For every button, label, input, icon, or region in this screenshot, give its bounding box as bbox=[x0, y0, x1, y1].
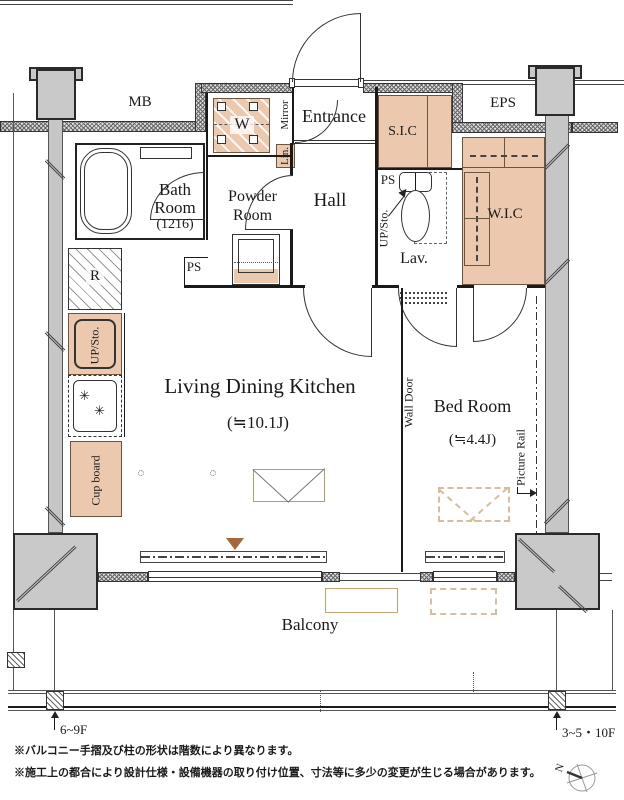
ac-unit-outline bbox=[325, 588, 398, 613]
wall-powder-top bbox=[206, 155, 293, 157]
washbasin-inner bbox=[238, 239, 274, 273]
wic-shelf-divider bbox=[504, 138, 505, 167]
bed-window bbox=[433, 571, 497, 582]
compass-graphic bbox=[552, 750, 608, 800]
picture-rail-label: Picture Rail bbox=[514, 421, 529, 495]
site-line-right-low bbox=[612, 610, 613, 690]
picture-rail-arrow-head bbox=[530, 489, 537, 497]
wall-bottom-hatch bbox=[497, 572, 515, 582]
room-label-sic: S.I.C bbox=[378, 124, 427, 140]
wall-powder-bottom bbox=[184, 285, 293, 288]
compass: N bbox=[552, 750, 608, 800]
column-bottom-left bbox=[13, 533, 98, 610]
room-label-mb: MB bbox=[100, 94, 180, 111]
exterior-wall-left bbox=[48, 118, 63, 533]
room-label-bath-1: Bath bbox=[140, 180, 210, 200]
room-label-entrance: Entrance bbox=[293, 106, 375, 127]
curtain-box-bed bbox=[425, 551, 505, 563]
hall-door-arc bbox=[303, 288, 372, 357]
railing-line bbox=[8, 690, 616, 691]
room-label-eps: EPS bbox=[468, 95, 538, 112]
washbasin-dots bbox=[234, 262, 278, 263]
washer-label: W bbox=[230, 116, 254, 134]
wall-hall-left-upper bbox=[290, 143, 293, 175]
vent-dots bbox=[400, 297, 447, 299]
railing-line bbox=[8, 706, 616, 708]
vent-dots bbox=[400, 292, 447, 294]
room-label-bath-3: (1216) bbox=[140, 217, 210, 233]
ceiling-mark bbox=[138, 470, 144, 476]
floor-arrow-line bbox=[54, 716, 55, 730]
vent-dots bbox=[400, 302, 447, 304]
ac-unit-dashed bbox=[430, 588, 497, 615]
ps-label-powder: PS bbox=[182, 259, 206, 275]
wall-ps-step-h bbox=[184, 257, 208, 258]
floor-label-left: 6~9F bbox=[60, 722, 87, 738]
floor-arrow-head bbox=[553, 711, 561, 718]
railing-line bbox=[8, 710, 616, 711]
counter-front-line bbox=[124, 313, 125, 437]
toilet-bowl bbox=[401, 190, 430, 242]
room-label-balcony: Balcony bbox=[268, 615, 352, 635]
fridge-label: R bbox=[86, 268, 104, 285]
bath-counter bbox=[140, 147, 192, 159]
column-drop-line bbox=[556, 610, 557, 692]
bathtub-inner bbox=[84, 152, 128, 230]
wic-door-arc bbox=[473, 288, 527, 342]
wall-hatch-far-right bbox=[572, 122, 618, 133]
wic-shelf-dashes bbox=[470, 155, 538, 157]
footnote-1: ※バルコニー手摺及び柱の形状は階数により異なります。 bbox=[14, 742, 298, 758]
ps-label-lav: PS bbox=[376, 172, 400, 188]
room-label-wic: W.I.C bbox=[477, 206, 533, 223]
railing-post bbox=[46, 691, 64, 710]
railing-post bbox=[7, 652, 25, 668]
wall-hatch-mb bbox=[0, 121, 201, 132]
picture-rail-arrow-h bbox=[517, 493, 531, 494]
room-label-lav: Lav. bbox=[392, 250, 436, 268]
sic-divider bbox=[427, 96, 428, 167]
column-top-left bbox=[36, 69, 76, 120]
wall-seg bbox=[372, 285, 399, 288]
room-area-ldk: (≒10.1J) bbox=[158, 413, 358, 433]
ceiling-mark bbox=[210, 470, 216, 476]
room-label-hall: Hall bbox=[300, 190, 360, 212]
wall-seg bbox=[457, 285, 474, 288]
toilet-tank-divider bbox=[415, 173, 416, 191]
entrance-door-arc bbox=[292, 13, 361, 82]
wall-lav-top bbox=[378, 168, 465, 170]
powder-door-arc bbox=[245, 175, 293, 230]
column-drop-line bbox=[54, 610, 55, 692]
wall-bottom-mid bbox=[340, 573, 420, 581]
wall-bath-powder bbox=[206, 93, 208, 240]
balcony-triangle-marker bbox=[226, 538, 244, 550]
corridor-line-left bbox=[0, 0, 293, 5]
washer-foot bbox=[249, 102, 258, 111]
wall-seg bbox=[527, 285, 545, 288]
mirror-label: Mirror bbox=[279, 92, 291, 138]
wall-bottom-hatch bbox=[98, 572, 148, 582]
wall-hall-left-lower bbox=[290, 230, 293, 288]
stove-burner: ✳ bbox=[79, 388, 90, 404]
ldk-table bbox=[253, 469, 325, 502]
room-label-bed: Bed Room bbox=[410, 396, 535, 417]
footnote-2: ※施工上の都合により設計仕様・設備機器の取り付け位置、寸法等に多少の変更が生じる… bbox=[14, 764, 541, 780]
curtain-box-ldk bbox=[140, 551, 327, 563]
ldk-window bbox=[148, 571, 322, 582]
washer-foot bbox=[217, 135, 226, 144]
washer-foot bbox=[249, 135, 258, 144]
site-line-left-low bbox=[13, 668, 14, 690]
entrance-step bbox=[293, 140, 375, 144]
floor-arrow-line bbox=[556, 716, 557, 730]
wall-hatch-top-right bbox=[363, 83, 463, 93]
room-label-ldk: Living Dining Kitchen bbox=[125, 374, 395, 399]
kitchen-upsto-label: UP/Sto. bbox=[88, 324, 103, 368]
cupboard-label: Cup board bbox=[89, 451, 104, 511]
wall-bottom-hatch bbox=[322, 572, 340, 582]
exterior-wall-right bbox=[545, 114, 569, 533]
washer-foot bbox=[217, 102, 226, 111]
picture-rail-line bbox=[536, 296, 537, 560]
wall-bottom-right-end bbox=[600, 573, 612, 581]
balcony-dotted-divider bbox=[473, 672, 474, 692]
floor-plan: MB EPS W Mirror Lin. Bath Room (1216) Po… bbox=[0, 0, 624, 800]
floor-label-right: 3~5・10F bbox=[562, 722, 615, 741]
stove-burner: ✳ bbox=[94, 403, 105, 419]
room-label-bath-2: Room bbox=[140, 198, 210, 218]
floor-arrow-head bbox=[51, 711, 59, 718]
railing-line bbox=[8, 693, 616, 694]
column-top-right bbox=[535, 67, 575, 116]
railing-post bbox=[548, 691, 566, 710]
wall-bottom-hatch bbox=[420, 572, 433, 582]
